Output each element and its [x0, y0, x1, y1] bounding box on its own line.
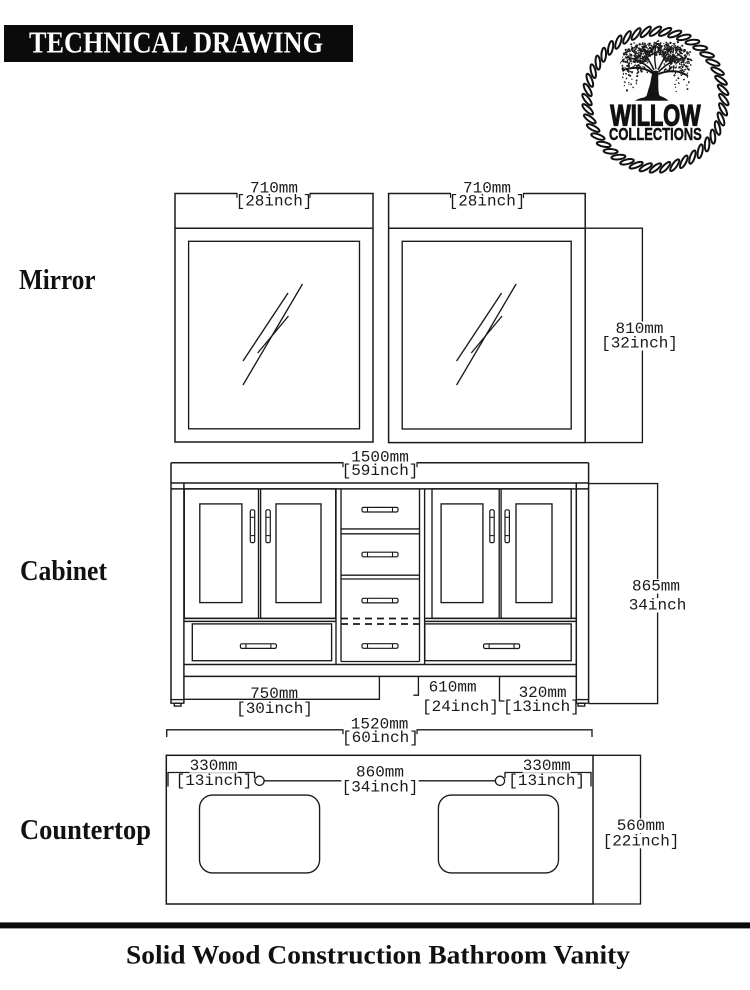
svg-text:[32inch]: [32inch]	[601, 335, 678, 353]
svg-text:Mirror: Mirror	[19, 265, 96, 296]
svg-text:[13inch]: [13inch]	[503, 698, 580, 716]
svg-text:34inch: 34inch	[629, 597, 687, 615]
svg-text:865mm: 865mm	[632, 578, 680, 596]
svg-text:[22inch]: [22inch]	[603, 832, 680, 850]
svg-text:[24inch]: [24inch]	[422, 698, 499, 716]
svg-text:610mm: 610mm	[429, 679, 477, 697]
svg-text:Solid Wood Construction Bathro: Solid Wood Construction Bathroom Vanity	[126, 939, 630, 969]
svg-text:[30inch]: [30inch]	[236, 700, 313, 718]
svg-text:TECHNICAL DRAWING: TECHNICAL DRAWING	[29, 25, 323, 60]
svg-text:Cabinet: Cabinet	[20, 556, 108, 587]
svg-text:[13inch]: [13inch]	[508, 772, 585, 790]
svg-text:[13inch]: [13inch]	[176, 772, 253, 790]
svg-text:Countertop: Countertop	[20, 815, 151, 846]
svg-text:[60inch]: [60inch]	[342, 729, 419, 747]
svg-text:[34inch]: [34inch]	[342, 778, 419, 796]
svg-text:[28inch]: [28inch]	[449, 193, 526, 211]
svg-text:[28inch]: [28inch]	[236, 193, 313, 211]
svg-text:COLLECTIONS: COLLECTIONS	[609, 125, 702, 145]
svg-text:[59inch]: [59inch]	[342, 462, 419, 480]
